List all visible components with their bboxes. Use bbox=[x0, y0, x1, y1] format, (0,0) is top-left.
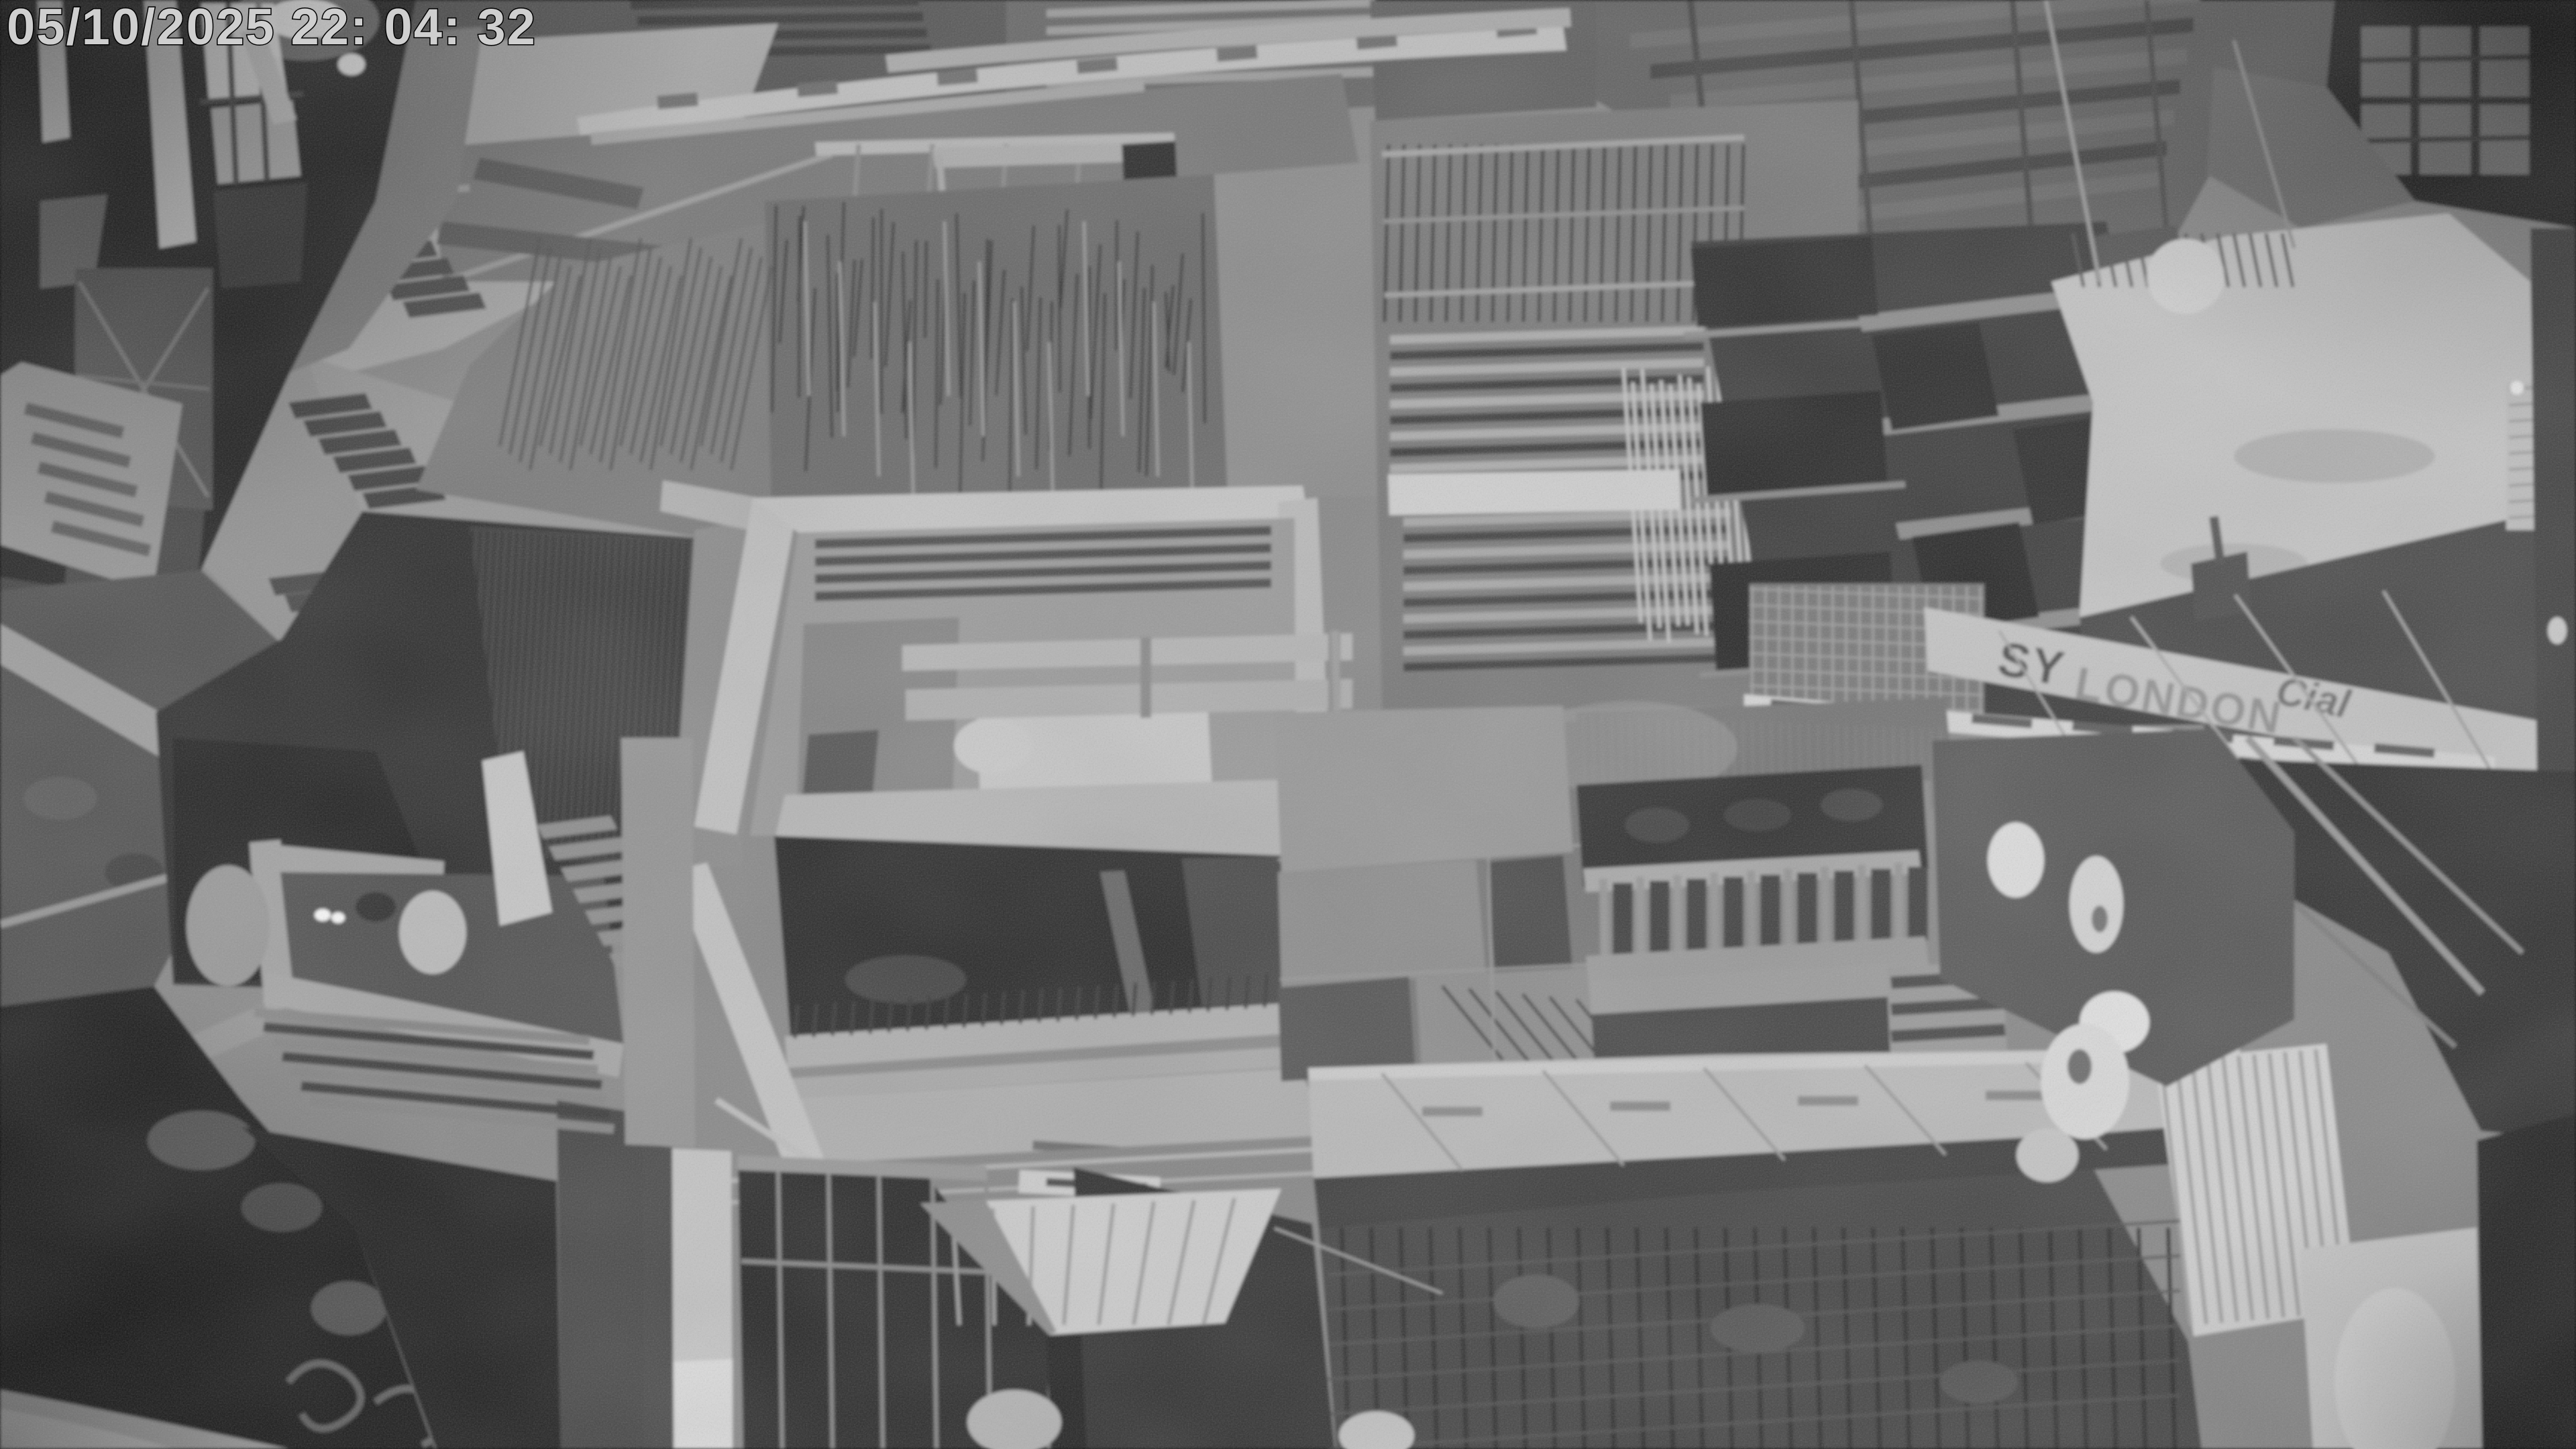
svg-text:05/10/2025 22: 04: 32: 05/10/2025 22: 04: 32 bbox=[7, 0, 537, 56]
